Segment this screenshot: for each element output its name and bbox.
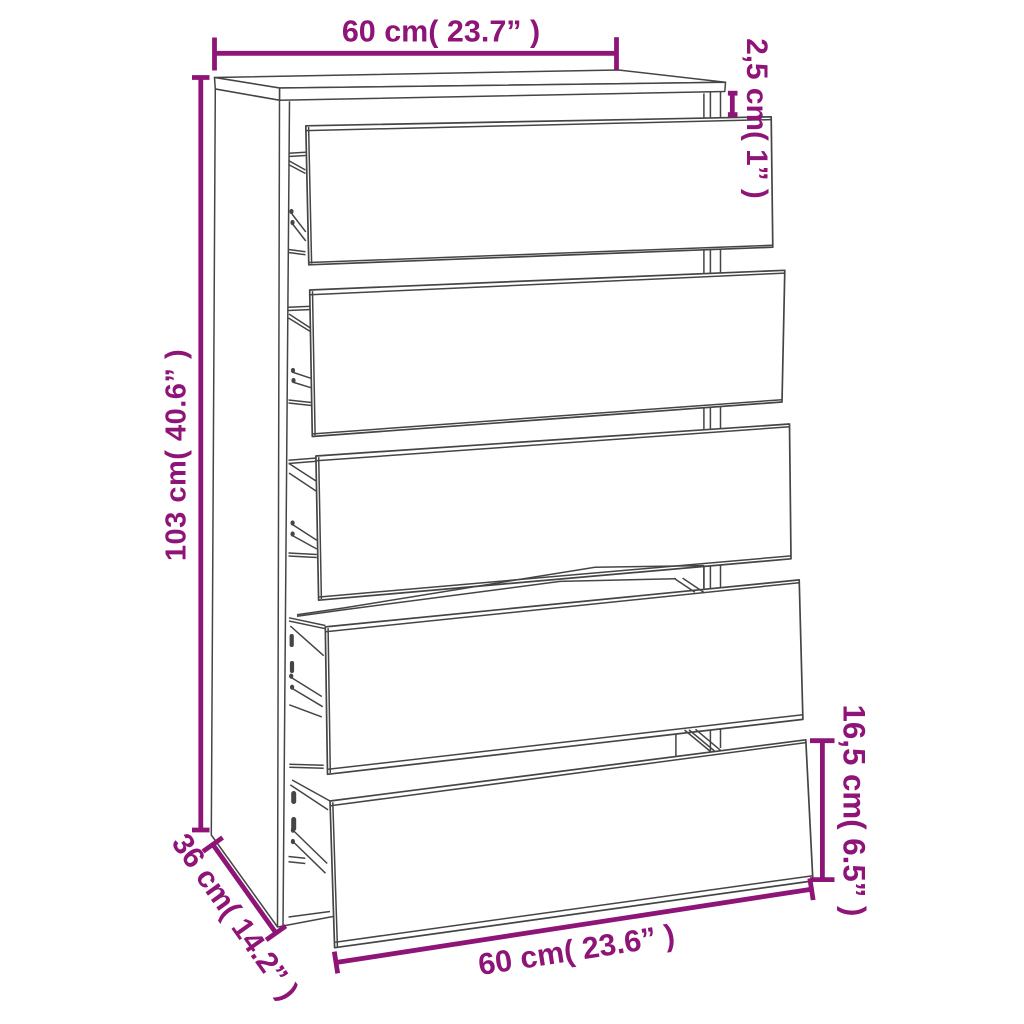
svg-text:103 cm( 40.6” ): 103 cm( 40.6” ) [160,349,192,561]
svg-text:2,5 cm( 1” ): 2,5 cm( 1” ) [740,38,773,199]
svg-text:16,5 cm( 6.5” ): 16,5 cm( 6.5” ) [837,705,872,917]
svg-text:60 cm( 23.7” ): 60 cm( 23.7” ) [342,15,540,49]
